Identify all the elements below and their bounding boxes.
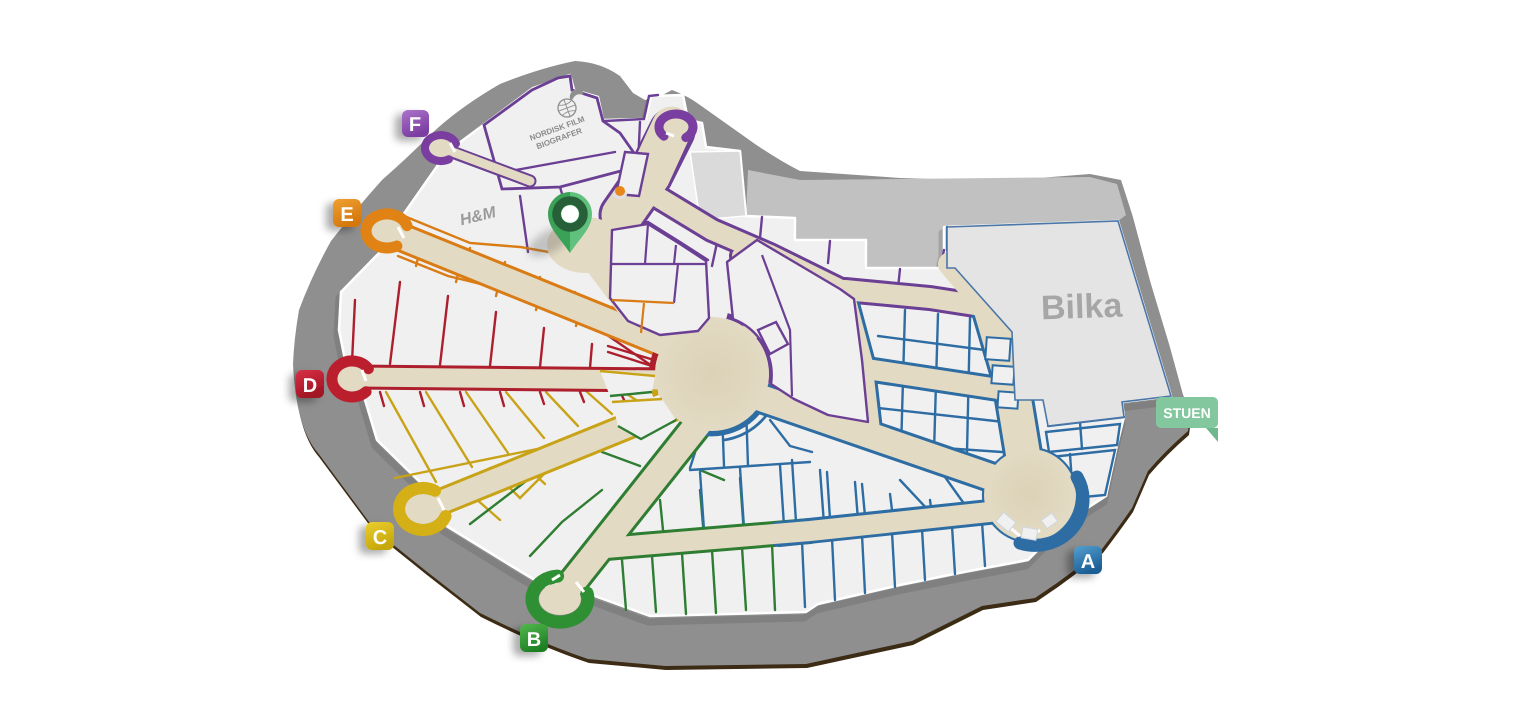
svg-text:C: C <box>373 527 387 549</box>
svg-text:B: B <box>527 629 541 651</box>
svg-text:E: E <box>340 204 353 226</box>
svg-text:STUEN: STUEN <box>1163 405 1210 421</box>
svg-text:Bilka: Bilka <box>1040 287 1124 328</box>
svg-text:A: A <box>1081 551 1095 573</box>
svg-text:F: F <box>409 114 421 136</box>
svg-text:D: D <box>303 375 317 397</box>
